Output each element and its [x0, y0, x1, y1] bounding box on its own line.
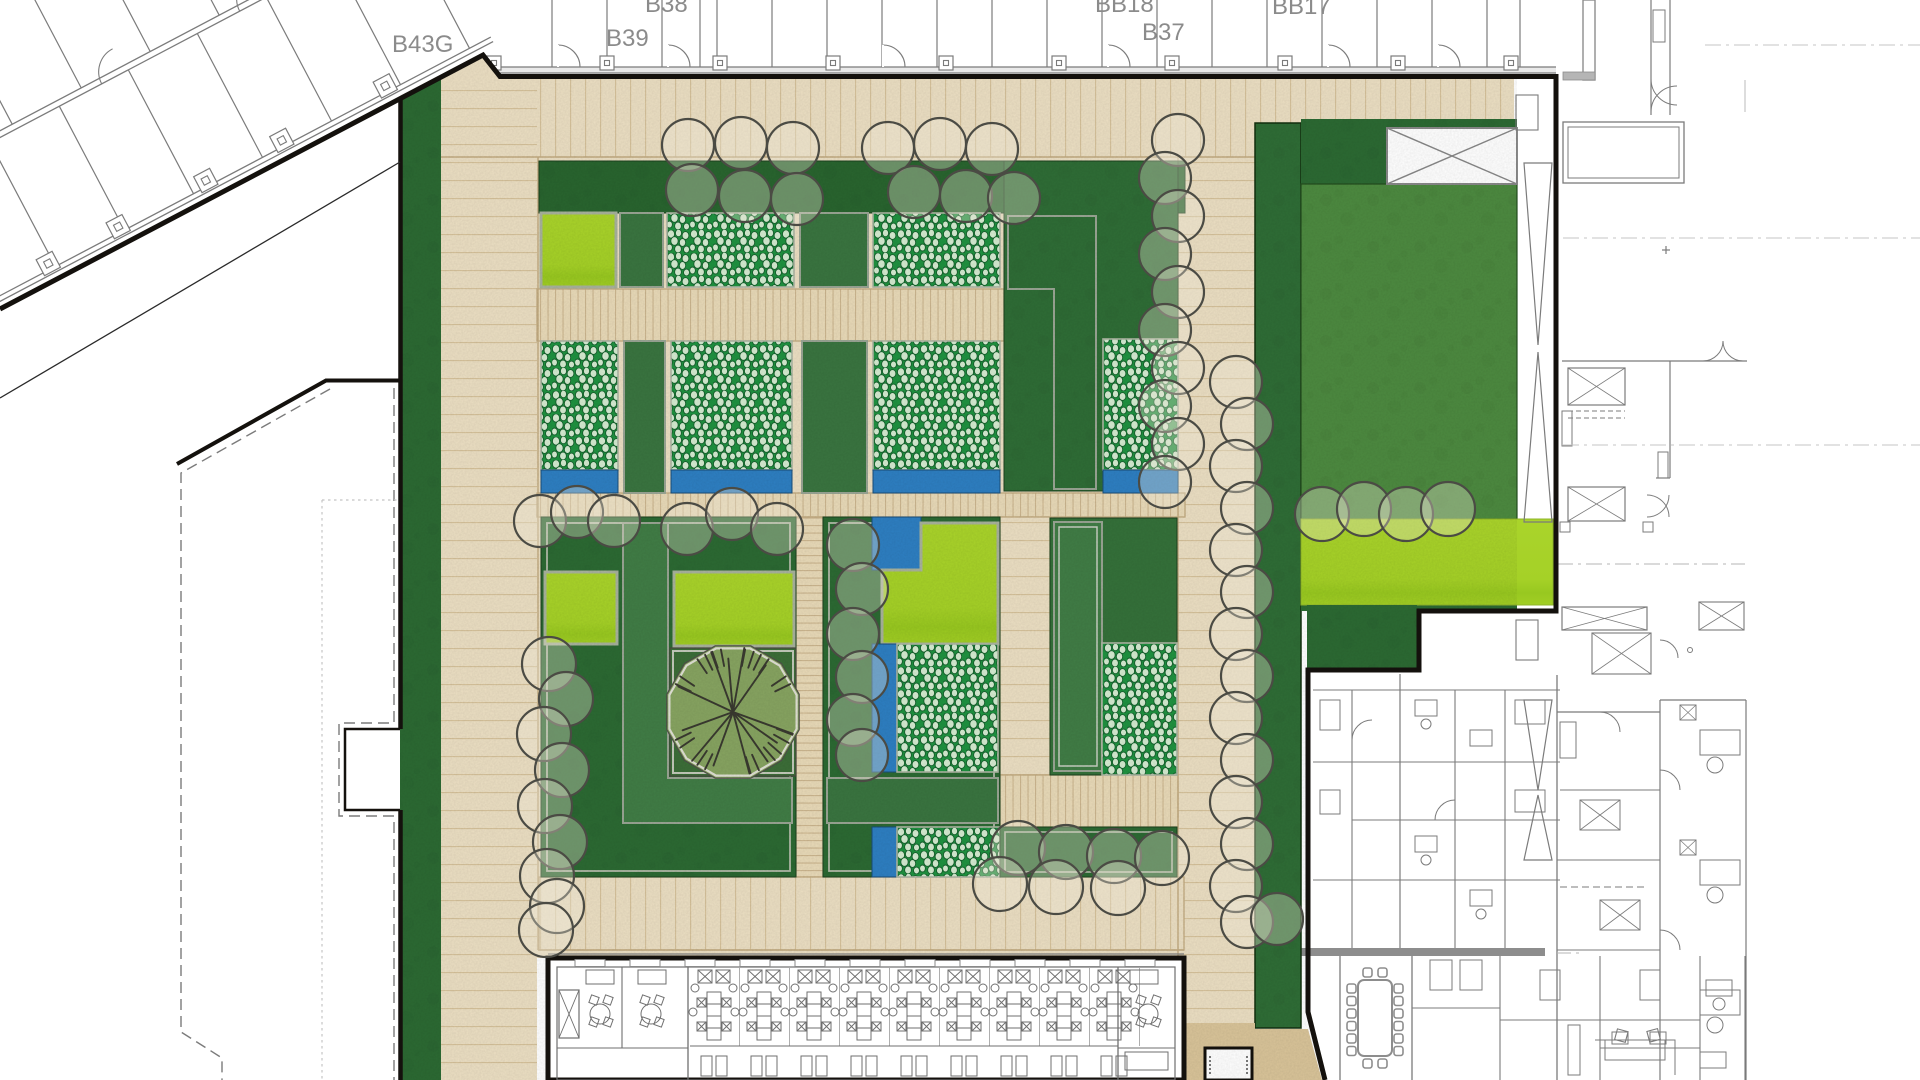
- svg-text:BB18: BB18: [1095, 0, 1154, 18]
- svg-text:B37: B37: [1142, 19, 1185, 46]
- svg-text:BB17: BB17: [1272, 0, 1331, 20]
- svg-text:B38: B38: [645, 0, 688, 18]
- svg-text:B43G: B43G: [392, 31, 453, 58]
- svg-text:B39: B39: [606, 25, 649, 52]
